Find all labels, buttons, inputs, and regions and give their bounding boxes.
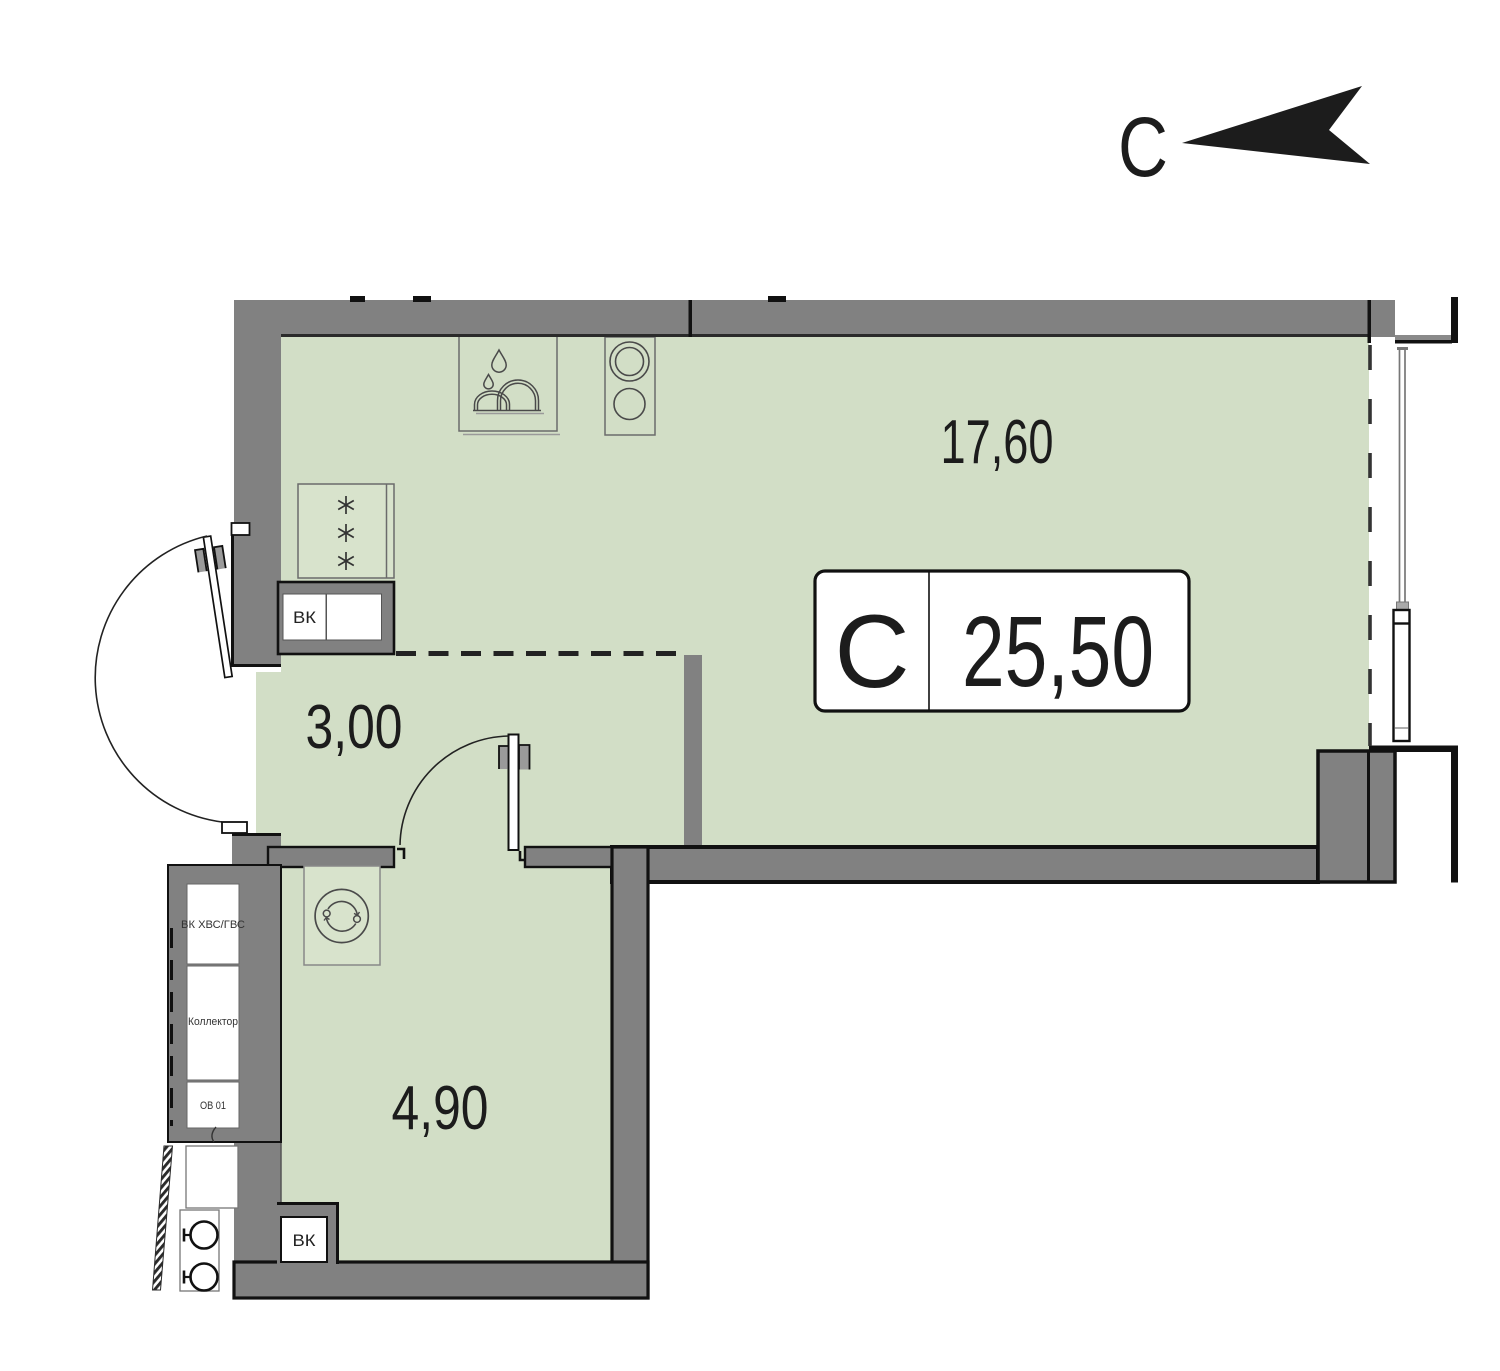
svg-text:ВК: ВК [293,1231,316,1250]
svg-text:Коллектор: Коллектор [188,1016,238,1028]
svg-text:ВК: ВК [293,608,316,627]
svg-text:25,50: 25,50 [962,596,1154,708]
svg-text:3,00: 3,00 [306,693,403,762]
svg-text:4,90: 4,90 [392,1074,489,1143]
svg-text:17,60: 17,60 [941,408,1054,477]
svg-text:С: С [834,594,909,710]
svg-text:ОВ 01: ОВ 01 [200,1100,226,1112]
svg-text:ВК ХВС/ГВС: ВК ХВС/ГВС [181,919,245,931]
svg-text:С: С [1118,100,1168,194]
